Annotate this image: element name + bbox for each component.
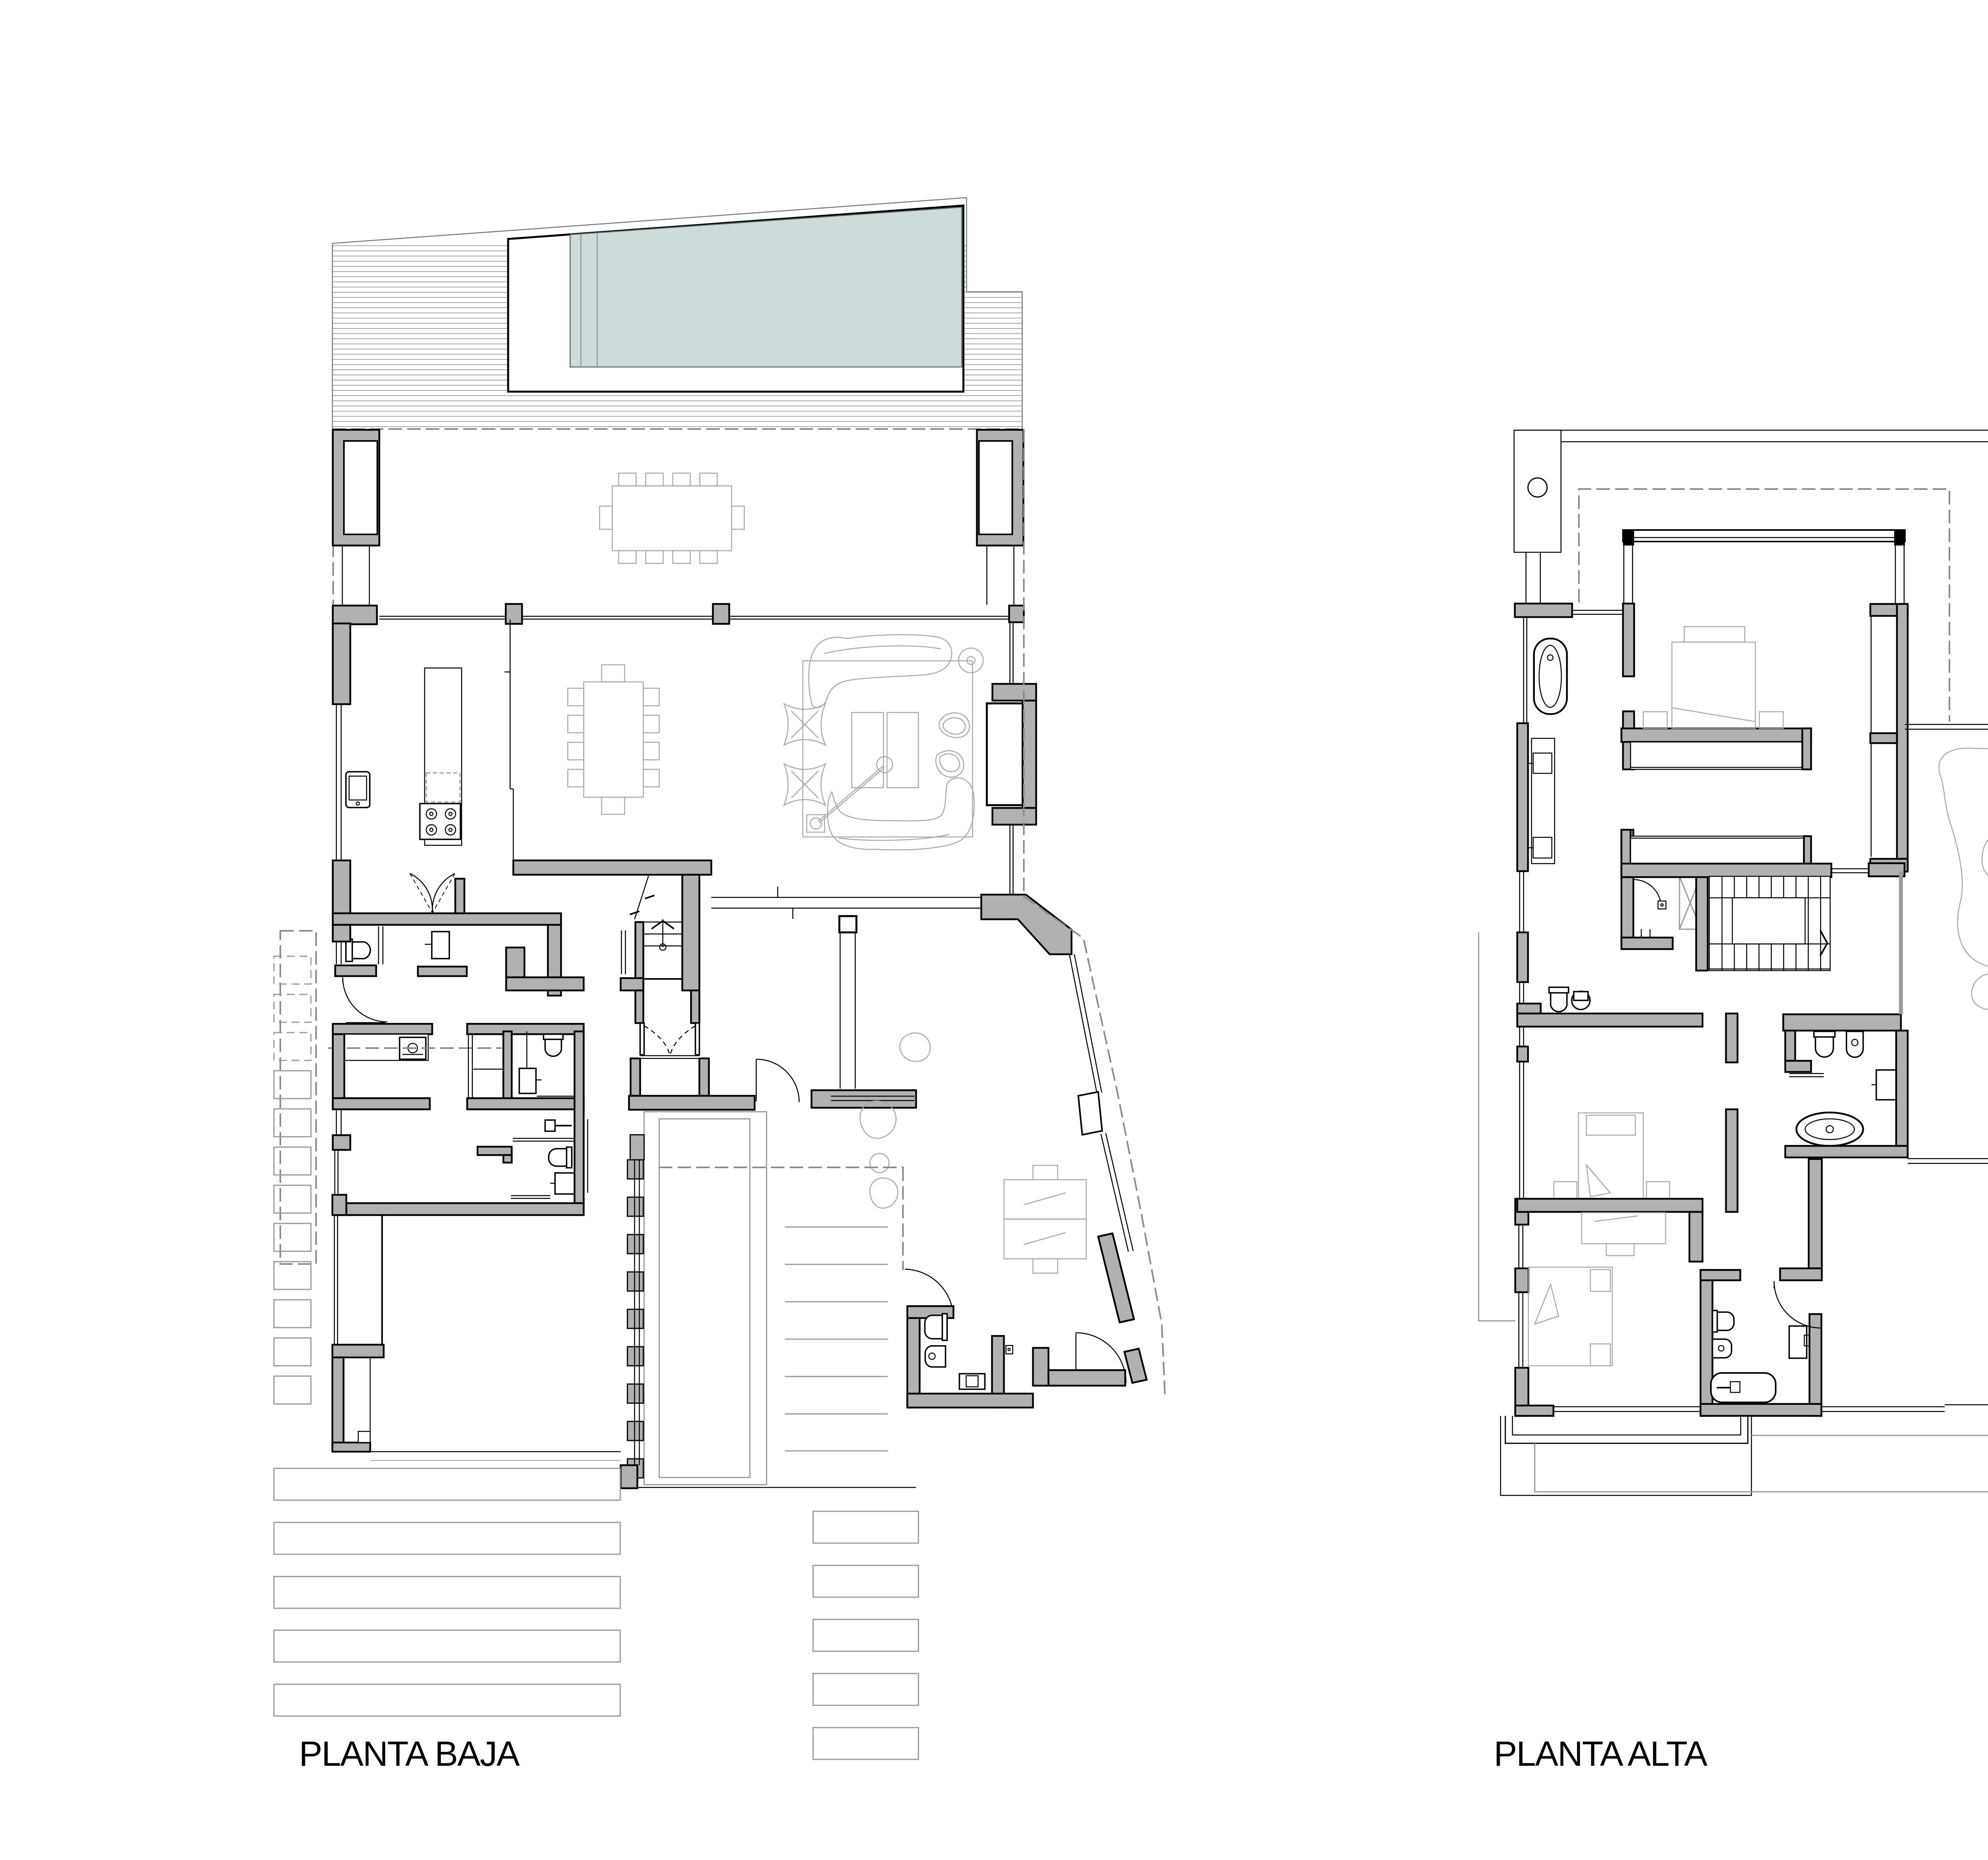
svg-text:PLANTA ALTA: PLANTA ALTA [1494,1734,1708,1773]
svg-text:PLANTA BAJA: PLANTA BAJA [299,1734,520,1773]
